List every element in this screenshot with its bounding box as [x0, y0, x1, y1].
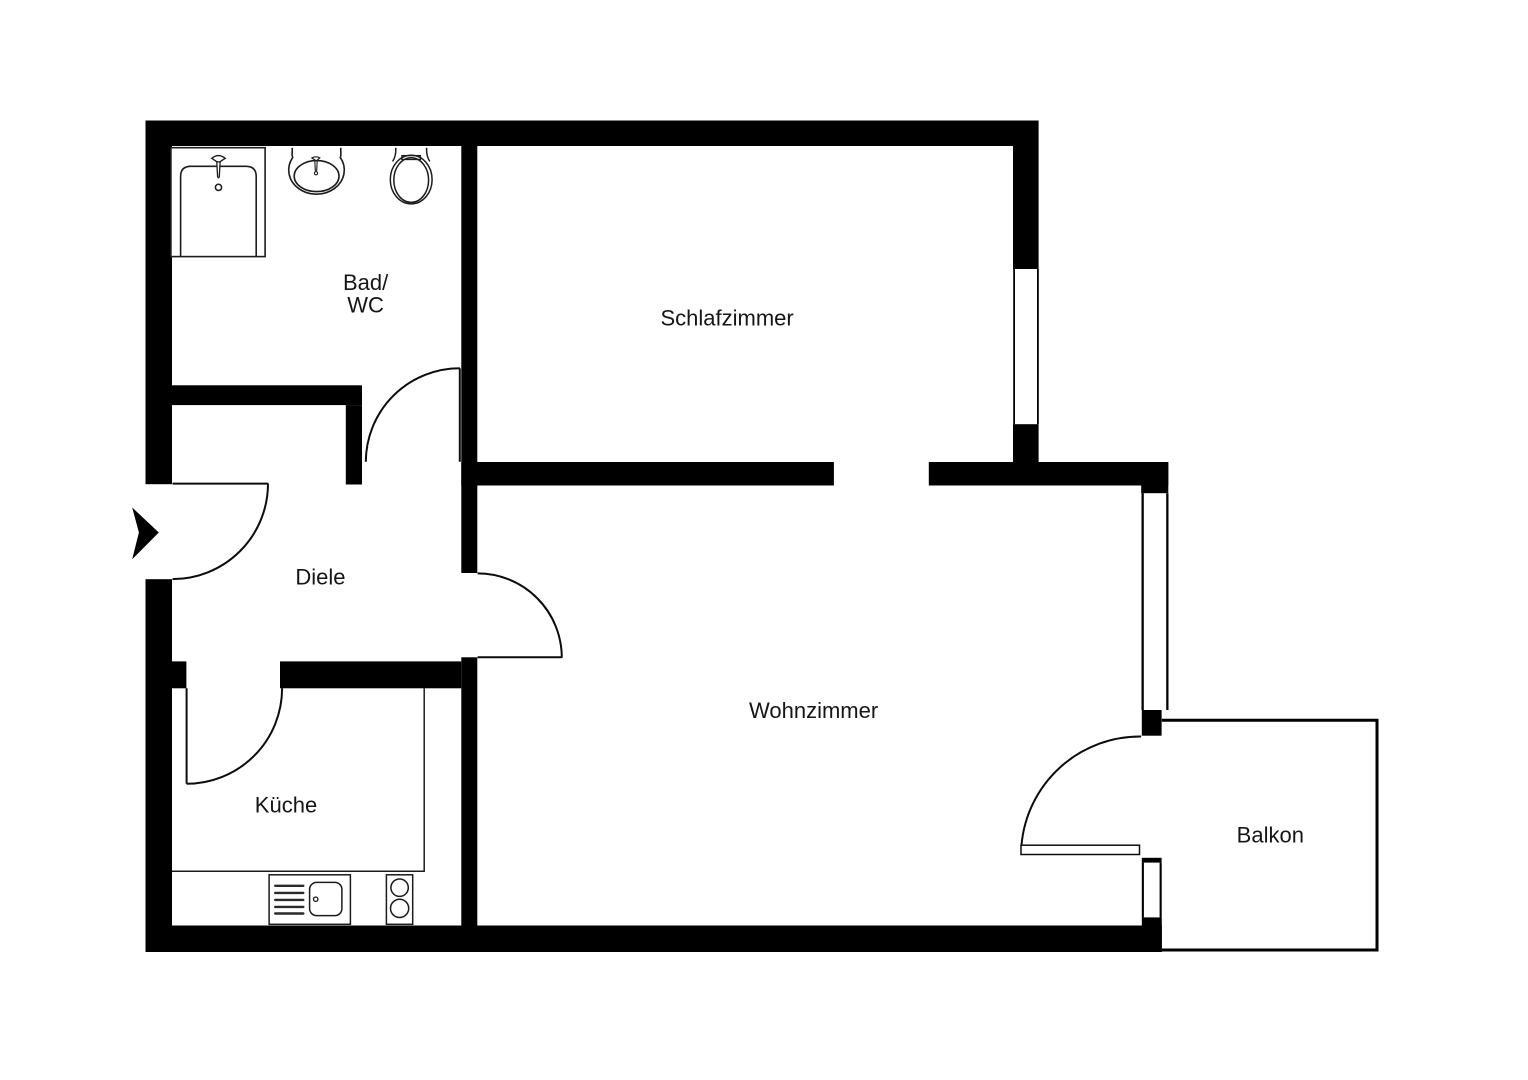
svg-text:Wohnzimmer: Wohnzimmer — [749, 698, 878, 723]
svg-text:Schlafzimmer: Schlafzimmer — [660, 305, 793, 330]
svg-text:WC: WC — [347, 292, 384, 317]
svg-text:Bad/: Bad/ — [343, 270, 389, 295]
svg-text:Küche: Küche — [255, 792, 317, 817]
svg-text:Balkon: Balkon — [1237, 823, 1304, 848]
svg-text:Diele: Diele — [295, 565, 345, 590]
